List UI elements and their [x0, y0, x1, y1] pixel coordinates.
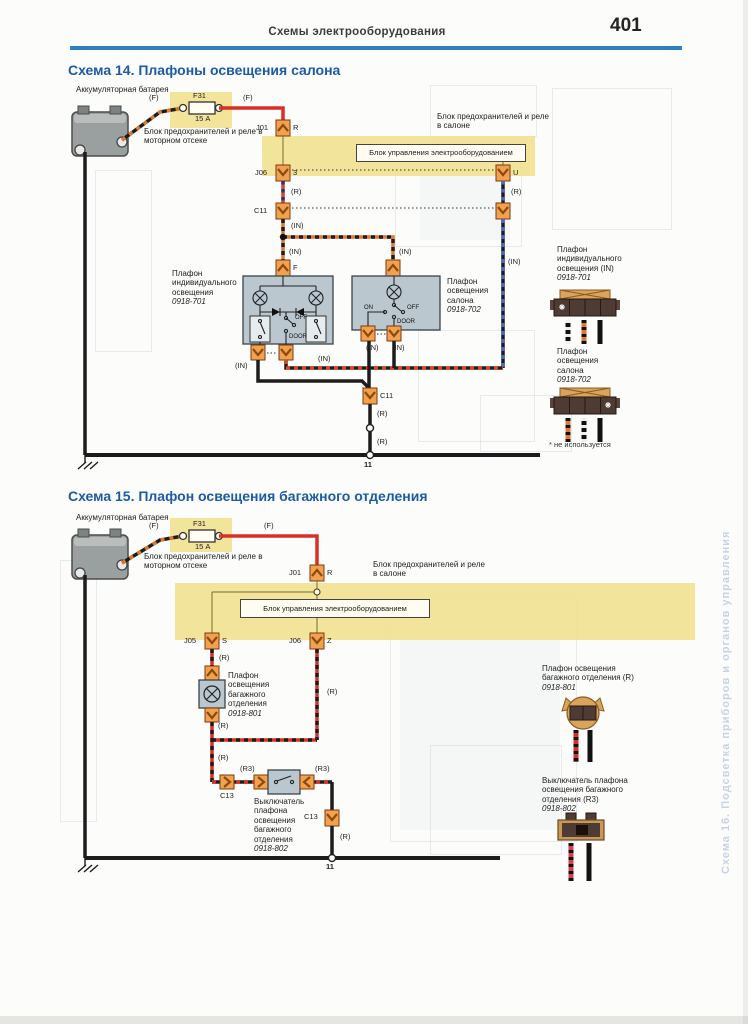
wire-label-r: (R) — [327, 687, 337, 696]
pin-label-u: U — [513, 168, 518, 177]
pin-label-s: S — [222, 636, 227, 645]
connector-label-j01: J01 — [289, 568, 301, 577]
wire-label-r: (R) — [218, 721, 228, 730]
connector-label-c13: C13 — [304, 812, 318, 821]
ground-node-11 — [367, 452, 374, 459]
connector-label-j06: J06 — [289, 636, 301, 645]
connector-lamp1-bottom-left — [251, 345, 265, 360]
wire-label-f: (F) — [264, 521, 274, 530]
legend-connector-801 — [562, 697, 604, 762]
battery-label: Аккумуляторная батарея — [76, 513, 176, 522]
connector-switch-right — [300, 775, 314, 789]
connector-c11-bottom — [363, 388, 377, 404]
scanned-manual-page: Схемы электрооборудования 401 Схема 14. … — [0, 0, 748, 1024]
connector-label-j06: J06 — [255, 168, 267, 177]
wire-label-in: (IN) — [291, 221, 304, 230]
connector-j06 — [276, 165, 290, 181]
switch-label-on: ON — [364, 305, 373, 311]
legend-code: 0918-802 — [542, 804, 640, 813]
trunk-switch-label: Выключатель плафона освещения багажного … — [254, 797, 314, 854]
battery-icon — [72, 106, 128, 156]
ecu-label-box: Блок управления электрооборудованием — [356, 144, 526, 162]
wire-label-r: (R) — [218, 753, 228, 762]
connector-lamp-bottom — [205, 708, 219, 722]
legend-item: Плафон освещения багажного отделения (R)… — [542, 664, 654, 692]
cabin-fusebox-label: Блок предохранителей и реле в салоне — [437, 112, 549, 131]
map-lamp-code: 0918-701 — [172, 297, 246, 306]
wire-label-in: (IN) — [399, 247, 412, 256]
connector-lamp2-bottom-left — [361, 326, 375, 341]
connector-j01 — [276, 120, 290, 136]
trunk-lamp-code: 0918-801 — [228, 709, 280, 718]
page-right-edge — [743, 0, 748, 1024]
connector-label-c11: C11 — [380, 391, 393, 400]
wire-label-r: (R) — [340, 832, 350, 841]
battery-icon — [72, 529, 128, 579]
legend-connector-702 — [550, 388, 620, 442]
map-lamp-name: Плафон индивидуального освещения — [172, 269, 246, 297]
wire-label-r3: (R3) — [315, 764, 330, 773]
legend-name: Выключатель плафона освещения багажного … — [542, 776, 640, 804]
connector-c13-bottom — [325, 810, 339, 826]
ecu-label-box: Блок управления электрооборудованием — [240, 599, 430, 618]
cabin-lamp-code: 0918-702 — [447, 305, 503, 314]
connector-label-c13: C13 — [220, 791, 234, 800]
wire-label-r: (R) — [291, 187, 301, 196]
fuse-label: F31 — [193, 91, 206, 100]
connector-switch-left — [254, 775, 268, 789]
connector-lamp1-bottom-right — [279, 345, 293, 360]
connector-u — [496, 165, 510, 181]
engine-fusebox-label: Блок предохранителей и реле в моторном о… — [144, 127, 272, 146]
legend-item: Плафон освещения салона 0918-702 — [557, 347, 613, 385]
switch-label-door: DOOR — [289, 334, 307, 340]
map-lamp-box — [243, 276, 333, 345]
legend-connector-802 — [558, 813, 604, 881]
page-bottom-edge — [0, 1016, 748, 1024]
wire-label-f: (F) — [149, 521, 159, 530]
legend-name: Плафон освещения салона — [557, 347, 613, 375]
ground-node-11 — [329, 855, 336, 862]
battery-label: Аккумуляторная батарея — [76, 85, 176, 94]
connector-j05 — [205, 633, 219, 649]
connector-c13-side — [220, 775, 234, 789]
pin-label-z: Z — [327, 636, 332, 645]
connector-f — [276, 260, 290, 276]
legend-name: Плафон освещения багажного отделения (R) — [542, 664, 654, 683]
connector-lamp-top — [205, 666, 219, 680]
fuse-label: F31 — [193, 519, 206, 528]
ground-node-label: 11 — [326, 862, 334, 871]
wire-label-f: (F) — [243, 93, 253, 102]
connector-j06 — [310, 633, 324, 649]
legend-item: Выключатель плафона освещения багажного … — [542, 776, 640, 814]
legend-connector-701 — [550, 290, 620, 344]
wire-label-in: (IN) — [289, 247, 302, 256]
connector-c11-right — [496, 203, 510, 219]
ground-node-label: 11 — [364, 460, 372, 469]
wire-label-in: (IN) — [235, 361, 248, 370]
wire-label-in: (IN) — [366, 343, 379, 352]
wire-label-r: (R) — [511, 187, 521, 196]
wire-label-r: (R) — [377, 437, 387, 446]
trunk-lamp-name: Плафон освещения багажного отделения — [228, 671, 280, 709]
ground-icon — [78, 455, 98, 469]
switch-label-off: OFF — [407, 305, 419, 311]
wire-label-in: (IN) — [508, 257, 521, 266]
fuse-rating: 15 А — [195, 114, 210, 123]
junction-dot — [280, 234, 286, 240]
engine-fusebox-label: Блок предохранителей и реле в моторном о… — [144, 552, 272, 571]
legend-item: Плафон индивидуального освещения (IN) 09… — [557, 245, 641, 283]
fuse-rating: 15 А — [195, 542, 210, 551]
connector-label-c11: C11 — [254, 206, 267, 215]
wire-label-r: (R) — [377, 409, 387, 418]
legend-name: Плафон индивидуального освещения (IN) — [557, 245, 641, 273]
legend-code: 0918-701 — [557, 273, 641, 282]
switch-label-door: DOOR — [397, 319, 415, 325]
switch-label-off: OFF — [295, 315, 307, 321]
legend-code: 0918-801 — [542, 683, 654, 692]
connector-label-j01: J01 — [256, 123, 268, 132]
wire-label-in: (IN) — [318, 354, 331, 363]
cabin-lamp-label: Плафон освещения салона 0918-702 — [447, 277, 503, 315]
trunk-lamp-label: Плафон освещения багажного отделения 091… — [228, 671, 280, 718]
connector-label-j05: J05 — [184, 636, 196, 645]
ground-icon — [78, 858, 98, 872]
legend-code: 0918-702 — [557, 375, 613, 384]
schema14-diagram — [72, 92, 620, 469]
connector-c11-left — [276, 203, 290, 219]
wire-label-in: (IN) — [392, 343, 405, 352]
splice-node — [367, 425, 374, 432]
trunk-lamp-switch-box — [268, 770, 300, 794]
splice-node — [314, 589, 320, 595]
connector-j01 — [310, 565, 324, 581]
pin-label-f: F — [293, 263, 298, 272]
trunk-lamp-box — [199, 680, 225, 708]
pin-label-r: R — [327, 568, 332, 577]
cabin-lamp-name: Плафон освещения салона — [447, 277, 503, 305]
wire-label-r: (R) — [219, 653, 229, 662]
pin-label-r: R — [293, 123, 298, 132]
cabin-lamp-box — [352, 276, 440, 330]
trunk-switch-code: 0918-802 — [254, 844, 314, 853]
pin-label-3: 3 — [293, 168, 297, 177]
wire-in-black — [258, 360, 371, 390]
connector-lamp2-bottom-right — [387, 326, 401, 341]
connector-lamp2-top — [386, 260, 400, 276]
wire-label-f: (F) — [149, 93, 159, 102]
footnote: * не используется — [549, 440, 611, 449]
bleed-vertical-text: Схема 16. Подсветка приборов и органов у… — [720, 514, 732, 874]
map-lamp-label: Плафон индивидуального освещения 0918-70… — [172, 269, 246, 307]
wire-label-r3: (R3) — [240, 764, 255, 773]
cabin-fusebox-label: Блок предохранителей и реле в салоне — [373, 560, 485, 579]
